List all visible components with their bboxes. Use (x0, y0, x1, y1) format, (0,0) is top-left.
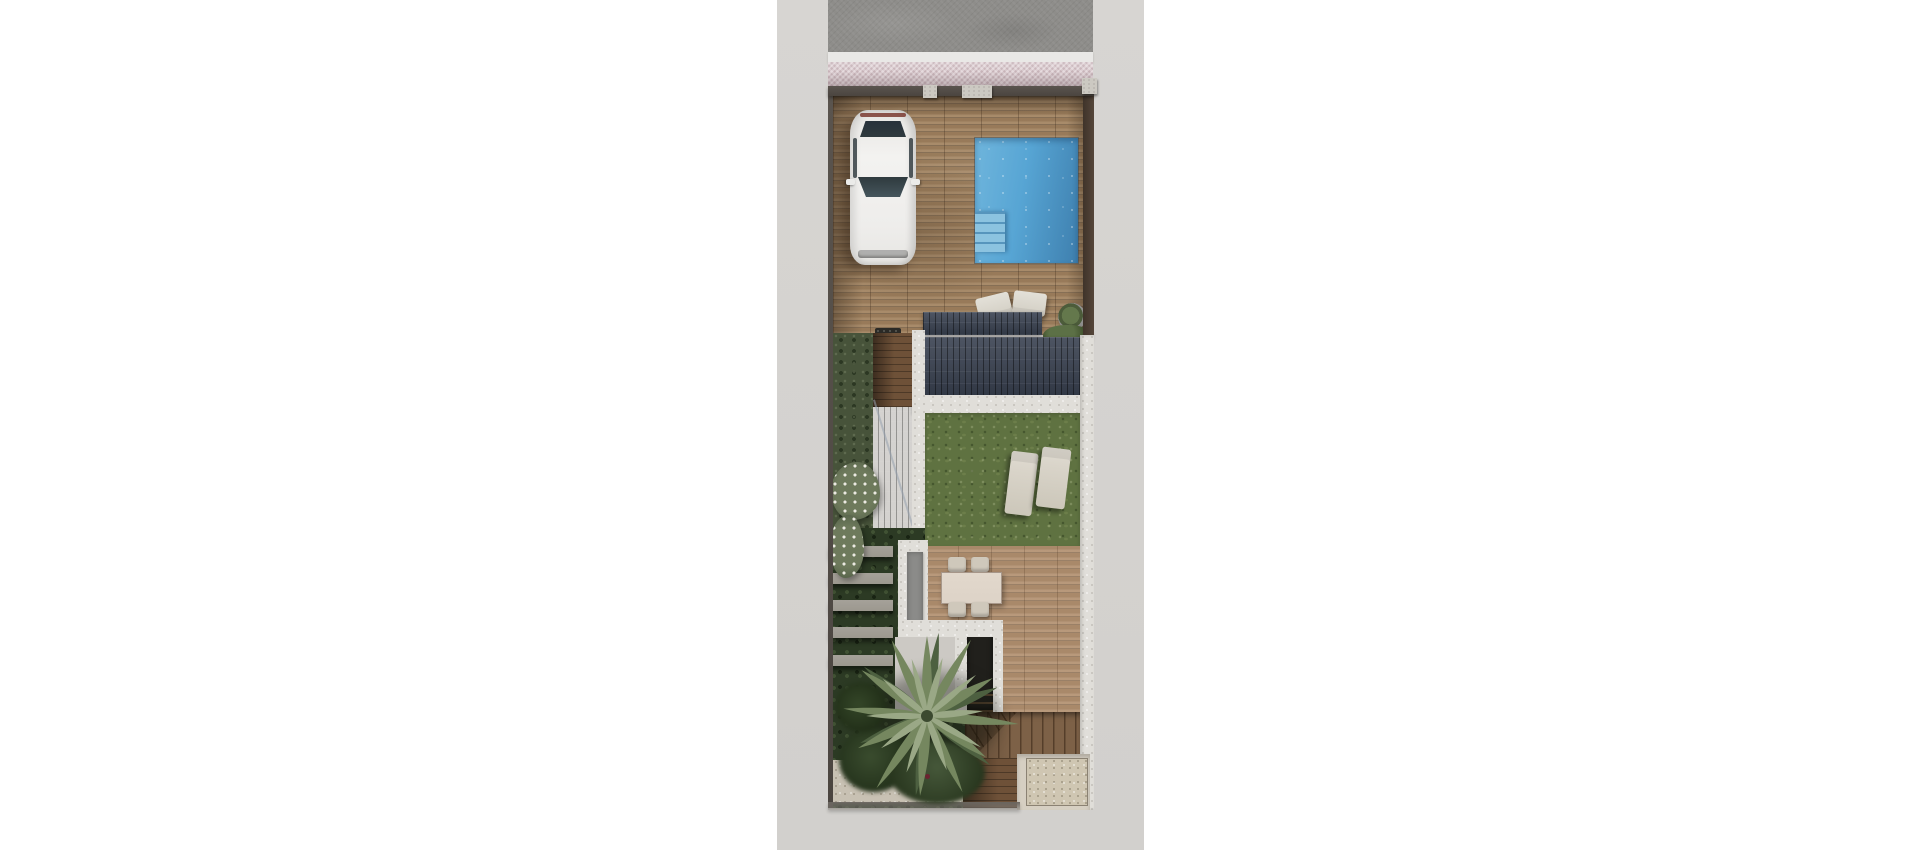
concrete-band-below-panels (912, 395, 1080, 413)
gate-pillar-2 (962, 85, 992, 98)
gate-pillar-1 (923, 85, 937, 98)
dining-chair-3 (948, 602, 966, 617)
gray-slab (907, 552, 923, 625)
car-taillight-bar (860, 113, 906, 117)
car-windshield (858, 177, 908, 197)
entrance-pad (1017, 754, 1090, 810)
sloped-dark-roof (872, 407, 912, 532)
right-planter-wall (1083, 96, 1094, 335)
plot-surroundings-ground (777, 0, 1144, 850)
dining-chair-4 (971, 602, 989, 617)
entrance-gravel-square (1026, 758, 1088, 806)
asphalt-road (828, 0, 1093, 52)
white-car (850, 110, 916, 265)
perimeter-wall-bottom (828, 802, 1020, 810)
right-white-wall (1080, 335, 1094, 810)
car-rear-window (860, 121, 906, 137)
site-plan-render (0, 0, 1920, 850)
pergola-slat-3 (830, 600, 893, 611)
corner-utility-box (1082, 78, 1097, 94)
side-passage-dark-wood (873, 333, 912, 407)
pink-sidewalk (828, 62, 1093, 86)
car-side-window-left (853, 138, 857, 178)
car-mirror-left (846, 179, 855, 185)
car-mirror-right (911, 179, 920, 185)
dining-table (941, 572, 1002, 604)
car-side-window-right (909, 138, 913, 178)
street-wall (828, 86, 1094, 96)
car-front-bumper (858, 250, 908, 258)
white-flowering-bush-2 (830, 515, 864, 578)
solar-panel-roof-large (923, 337, 1090, 396)
dining-chair-2 (971, 557, 989, 572)
white-flowering-bush-1 (831, 462, 880, 520)
dining-chair-1 (948, 557, 966, 572)
solar-panel-roof-small (923, 312, 1042, 335)
swimming-pool (975, 138, 1078, 263)
pool-steps (975, 212, 1005, 252)
palm-tree (831, 632, 1023, 800)
